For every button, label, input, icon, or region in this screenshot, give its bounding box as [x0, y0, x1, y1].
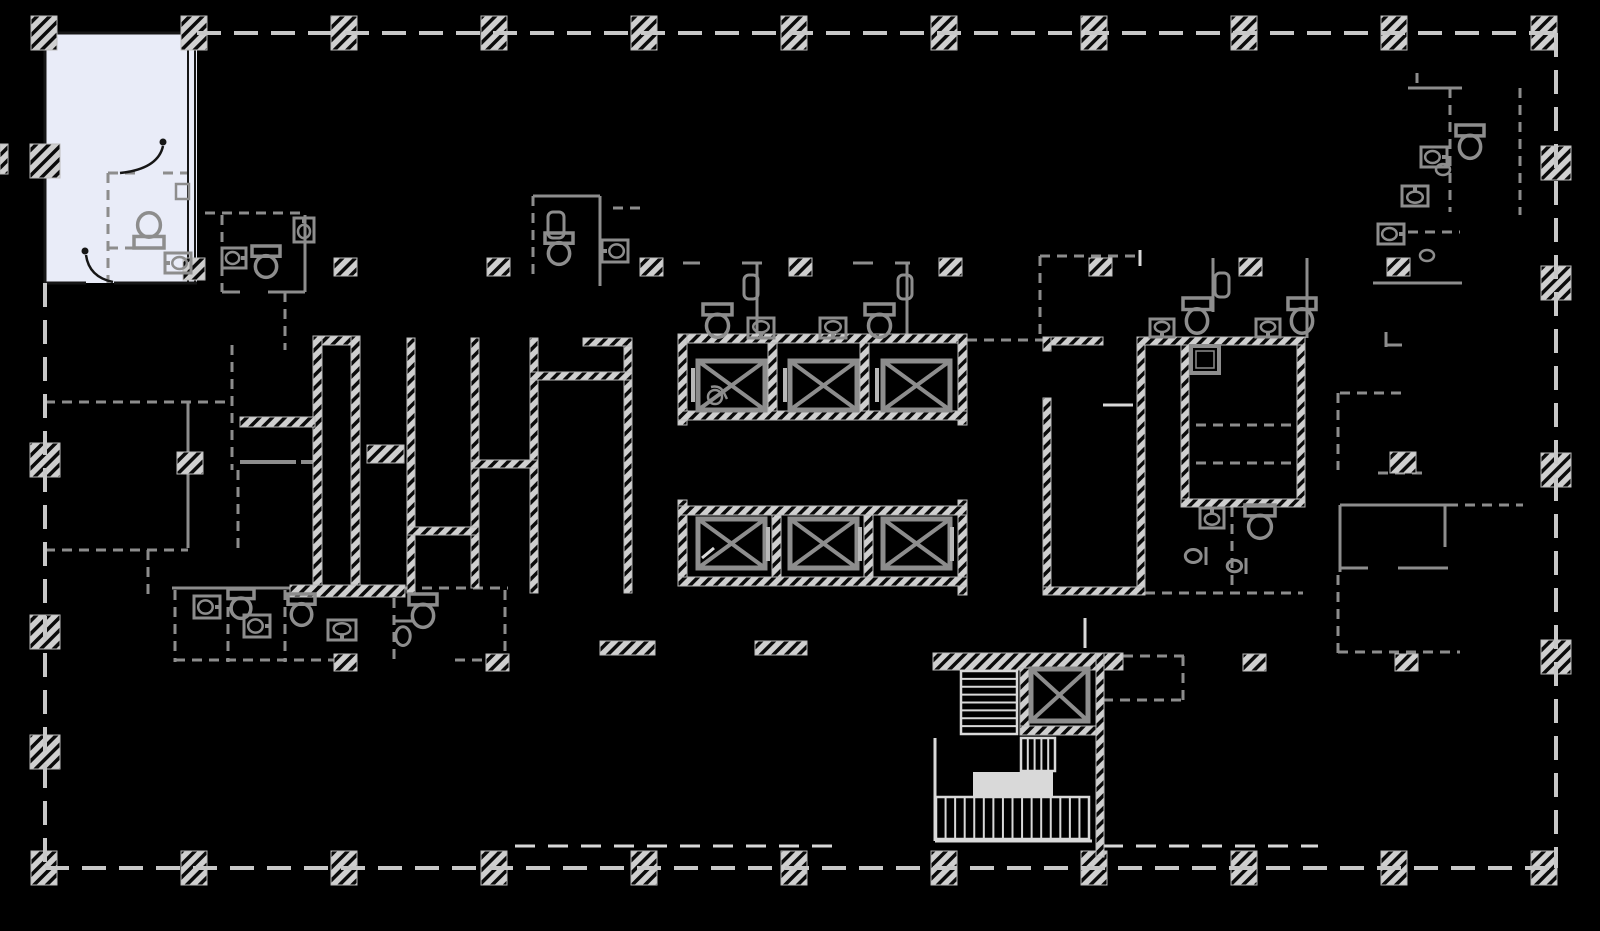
- hatched-wall: [1181, 345, 1189, 507]
- sink-faucet: [265, 624, 270, 628]
- sink-faucet: [602, 249, 607, 253]
- sink-faucet: [1210, 508, 1214, 513]
- sink-faucet: [831, 333, 835, 338]
- hatched-wall: [407, 338, 415, 593]
- hatched-wall: [313, 336, 322, 597]
- elevator-door-bar: [950, 527, 954, 561]
- elevator-door-bar: [875, 368, 879, 402]
- sink-faucet: [759, 333, 763, 338]
- sink-faucet: [1442, 155, 1447, 159]
- sink-faucet: [1160, 332, 1164, 337]
- door-hinge-dot: [82, 248, 89, 255]
- hatched-wall: [530, 372, 632, 380]
- hatched-wall: [933, 653, 1123, 670]
- elevator-door-bar: [766, 527, 770, 561]
- hatched-wall: [1297, 345, 1305, 507]
- highlighted-unit: [45, 33, 197, 283]
- elevator-door-bar: [783, 368, 787, 402]
- background: [0, 0, 1600, 931]
- hatched-wall: [583, 338, 632, 346]
- elevator-door-bar: [858, 527, 862, 561]
- sink-faucet: [1413, 186, 1417, 191]
- hatched-wall: [1020, 726, 1103, 735]
- hatched-wall: [1243, 654, 1266, 671]
- hatched-wall: [678, 506, 967, 515]
- hatched-wall: [1137, 337, 1145, 595]
- hatched-wall: [1043, 398, 1051, 595]
- hatched-wall: [789, 258, 812, 276]
- hatched-wall: [351, 336, 360, 597]
- hatched-wall: [1390, 452, 1416, 473]
- hatched-wall: [407, 527, 479, 535]
- hatched-wall: [939, 258, 962, 276]
- hatched-wall: [1239, 258, 1262, 276]
- hatched-wall: [1089, 258, 1112, 276]
- hatched-wall: [487, 258, 510, 276]
- sink-faucet: [215, 605, 220, 609]
- hatched-wall: [1395, 654, 1418, 671]
- sink-faucet: [302, 218, 306, 223]
- hatched-wall: [1181, 499, 1305, 507]
- elevator-door-bar: [691, 368, 695, 402]
- hatched-wall: [1043, 337, 1051, 351]
- stair-landing: [973, 772, 1053, 797]
- sink-faucet: [340, 635, 344, 640]
- hatched-wall: [367, 445, 404, 463]
- hatched-wall: [678, 577, 967, 586]
- floor-plan-svg: [0, 0, 1600, 931]
- hatched-wall: [768, 343, 777, 411]
- hatched-wall: [1387, 258, 1410, 276]
- hatched-wall: [486, 654, 509, 671]
- floor-plan-canvas: [0, 0, 1600, 931]
- sink-faucet: [165, 261, 170, 265]
- hatched-wall: [31, 16, 57, 50]
- sink-faucet: [1399, 232, 1404, 236]
- hatched-wall: [1043, 337, 1103, 345]
- hatched-wall: [30, 144, 60, 178]
- hatched-wall: [860, 343, 869, 411]
- hatched-wall: [177, 452, 203, 474]
- hatched-wall: [1020, 668, 1029, 735]
- door-hinge-dot: [160, 139, 167, 146]
- sink-faucet: [1266, 332, 1270, 337]
- hatched-wall: [334, 654, 357, 671]
- hatched-wall: [240, 417, 315, 427]
- sink-faucet: [241, 256, 246, 260]
- hatched-wall: [755, 641, 807, 655]
- hatched-wall: [334, 258, 357, 276]
- hatched-wall: [772, 515, 781, 577]
- hatched-wall: [471, 460, 538, 468]
- hatched-wall: [864, 515, 873, 577]
- hatched-wall: [600, 641, 655, 655]
- hatched-wall: [1043, 587, 1145, 595]
- hatched-wall: [640, 258, 663, 276]
- hatched-wall: [1096, 653, 1104, 857]
- hatched-wall: [0, 144, 8, 174]
